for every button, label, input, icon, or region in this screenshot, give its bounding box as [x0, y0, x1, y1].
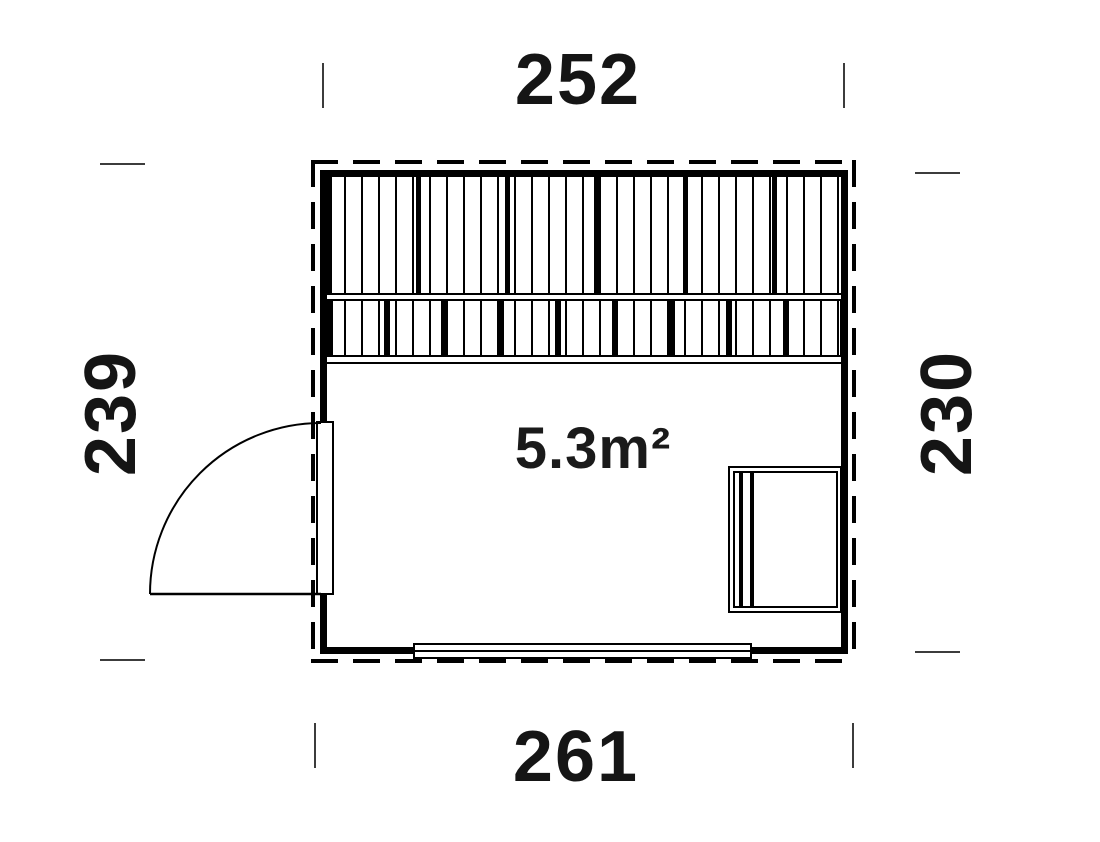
dimension-label-top: 252: [515, 44, 641, 116]
bench-lower-slats: [327, 301, 841, 355]
roof-outline-left: [311, 160, 315, 663]
roof-outline-right: [852, 160, 856, 663]
tick-top-right: [843, 63, 845, 108]
bench-divider-band: [327, 293, 841, 301]
bench-upper-slats: [327, 177, 841, 293]
dimension-label-left: 239: [75, 350, 147, 476]
tick-right-top: [915, 172, 960, 174]
window-midline: [413, 650, 752, 652]
roof-outline-bottom: [311, 659, 857, 663]
bench-front-edge: [327, 355, 841, 364]
tick-left-top: [100, 163, 145, 165]
door-leaf-in-wall: [316, 421, 334, 595]
tick-left-bottom: [100, 659, 145, 661]
table-left-rail: [739, 471, 754, 608]
door-swing-arc: [150, 423, 321, 594]
area-label: 5.3m²: [515, 420, 672, 478]
tick-bottom-right: [852, 723, 854, 768]
roof-outline-top: [311, 160, 857, 164]
dimension-label-bottom: 261: [513, 721, 639, 793]
dimension-label-right: 230: [911, 350, 983, 476]
tick-right-bottom: [915, 651, 960, 653]
tick-top-left: [322, 63, 324, 108]
tick-bottom-left: [314, 723, 316, 768]
floor-plan-canvas: 252 261 239 230 5.3m²: [0, 0, 1100, 842]
